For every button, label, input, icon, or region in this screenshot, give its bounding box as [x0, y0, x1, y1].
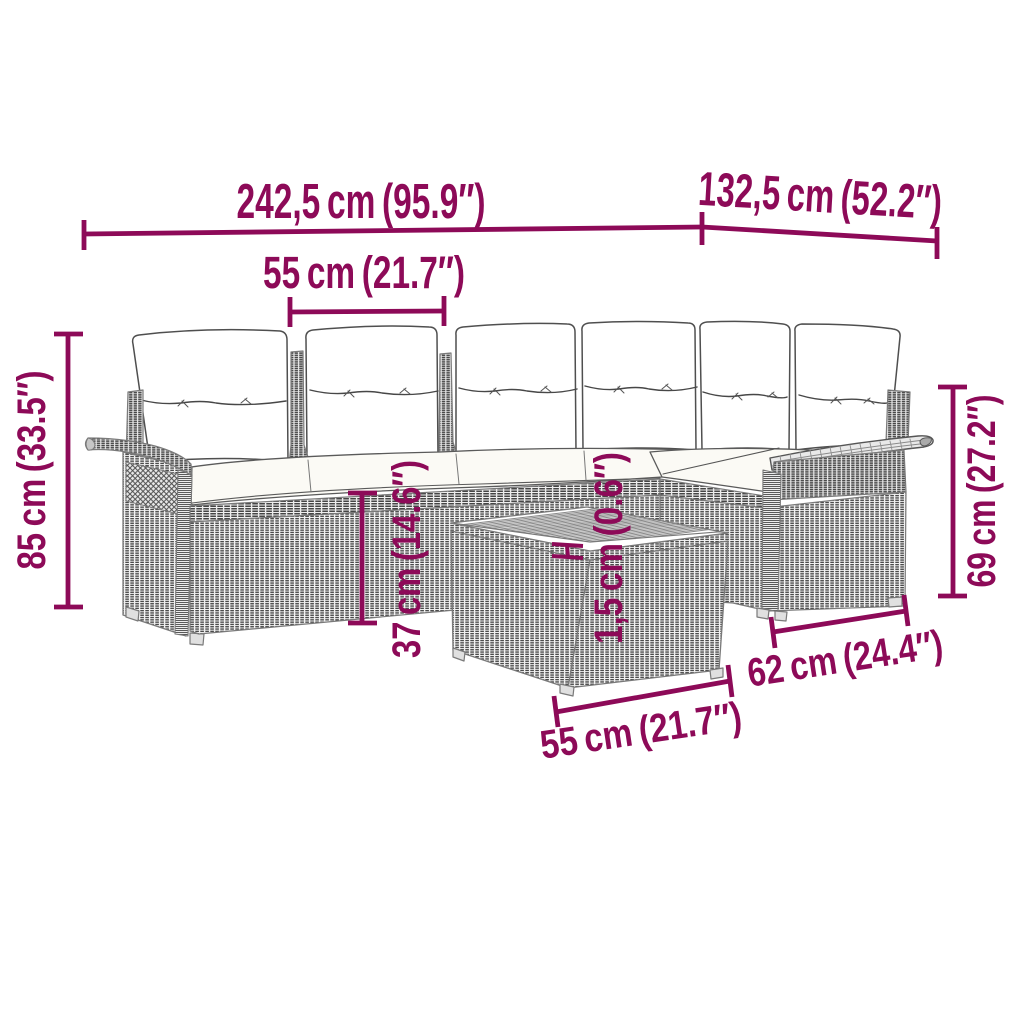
svg-text:1,5 cm (0.6″): 1,5 cm (0.6″) — [587, 452, 631, 644]
svg-text:242,5 cm (95.9″): 242,5 cm (95.9″) — [237, 175, 486, 229]
svg-text:69 cm (27.2″): 69 cm (27.2″) — [960, 395, 1004, 588]
svg-text:55 cm (21.7″): 55 cm (21.7″) — [263, 247, 465, 298]
svg-text:37 cm (14.6″): 37 cm (14.6″) — [385, 460, 429, 658]
svg-text:85 cm (33.5″): 85 cm (33.5″) — [10, 371, 54, 570]
